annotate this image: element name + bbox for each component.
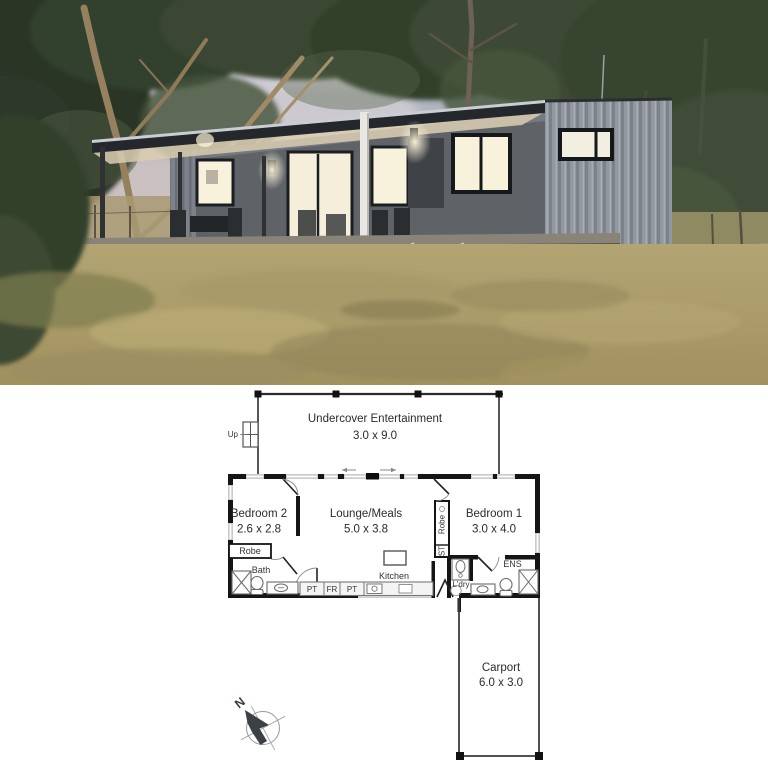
ensuite-fixtures — [471, 570, 538, 596]
up-label: Up — [228, 430, 239, 439]
property-photo — [0, 0, 768, 385]
store-label: ST — [438, 546, 447, 556]
side-window — [560, 130, 612, 159]
carport-dims: 6.0 x 3.0 — [479, 677, 523, 689]
lounge-name: Lounge/Meals — [330, 508, 402, 520]
bedroom1-dims: 3.0 x 4.0 — [472, 524, 516, 536]
floor-plan-drawing: Up Undercover Entertainment 3.0 x 9.0 — [0, 385, 768, 768]
bath-label: Bath — [252, 565, 271, 575]
stairs-symbol — [240, 422, 258, 447]
pantry-left-label: PT — [307, 585, 317, 594]
north-label: N — [232, 695, 248, 712]
laundry-fixtures — [451, 559, 469, 596]
pantry-right-label: PT — [347, 585, 357, 594]
kitchen-label: Kitchen — [379, 571, 409, 581]
laundry-label: L'dry — [452, 580, 469, 589]
sliding-door-leaf — [366, 473, 379, 480]
bedroom2-wall — [296, 496, 300, 536]
kitchen-bench — [300, 551, 433, 596]
undercover-dims: 3.0 x 9.0 — [353, 430, 397, 442]
kitchen-island — [384, 551, 406, 565]
floor-plan: Up Undercover Entertainment 3.0 x 9.0 — [0, 385, 768, 768]
carport: Carport 6.0 x 3.0 — [456, 598, 543, 760]
undercover-name: Undercover Entertainment — [308, 413, 443, 425]
robe-vertical-label: Robe — [438, 514, 447, 534]
top-wall — [228, 473, 540, 480]
photo-illustration — [0, 0, 768, 385]
lounge-dims: 5.0 x 3.8 — [344, 524, 388, 536]
north-arrow — [245, 710, 269, 745]
undercover-area: Up Undercover Entertainment 3.0 x 9.0 — [228, 391, 503, 475]
carport-name: Carport — [482, 662, 521, 674]
bedroom2-dims: 2.6 x 2.8 — [237, 524, 281, 536]
bedroom2-name: Bedroom 2 — [231, 508, 287, 520]
listing-image: Up Undercover Entertainment 3.0 x 9.0 — [0, 0, 768, 768]
ensuite-label: ENS — [503, 559, 522, 569]
robe-label: Robe — [239, 546, 261, 556]
top-windows — [246, 474, 515, 479]
bedroom1-name: Bedroom 1 — [466, 508, 522, 520]
sliding-door-arrows — [342, 468, 396, 472]
room-labels: Bedroom 2 2.6 x 2.8 Lounge/Meals 5.0 x 3… — [231, 508, 522, 594]
fridge-label: FR — [327, 585, 338, 594]
compass: N — [229, 694, 297, 762]
